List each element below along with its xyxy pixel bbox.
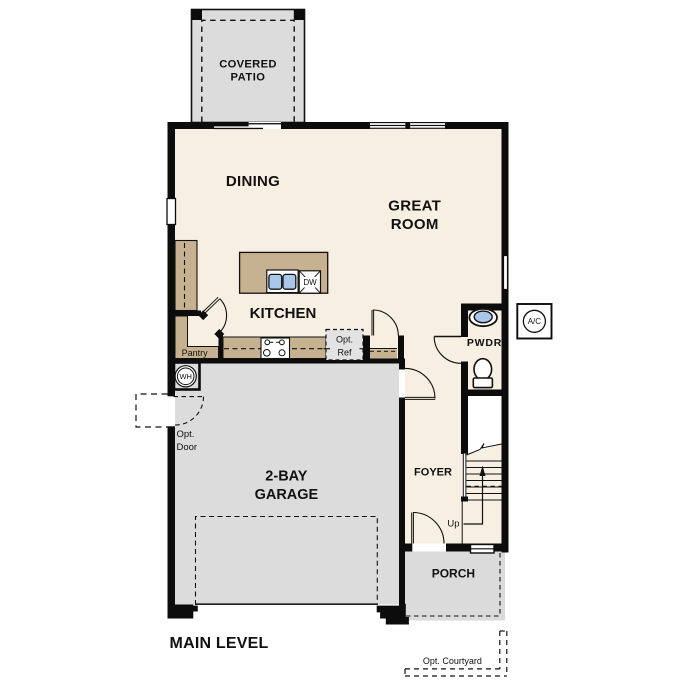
svg-text:GARAGE: GARAGE bbox=[255, 487, 319, 503]
svg-text:PATIO: PATIO bbox=[230, 72, 265, 84]
svg-text:FOYER: FOYER bbox=[414, 467, 452, 479]
svg-text:ROOM: ROOM bbox=[391, 216, 439, 233]
svg-text:GREAT: GREAT bbox=[388, 198, 441, 215]
svg-text:Up: Up bbox=[447, 518, 459, 529]
svg-text:DINING: DINING bbox=[226, 173, 280, 190]
svg-text:Ref: Ref bbox=[337, 348, 352, 358]
svg-text:KITCHEN: KITCHEN bbox=[250, 305, 317, 322]
svg-text:PORCH: PORCH bbox=[432, 567, 475, 581]
svg-text:Door: Door bbox=[177, 442, 198, 453]
svg-text:A/C: A/C bbox=[528, 317, 542, 326]
svg-text:COVERED: COVERED bbox=[219, 59, 276, 71]
svg-text:MAIN LEVEL: MAIN LEVEL bbox=[170, 635, 269, 652]
svg-text:Opt. Courtyard: Opt. Courtyard bbox=[423, 656, 482, 666]
svg-text:Opt.: Opt. bbox=[336, 335, 353, 345]
svg-text:Pantry: Pantry bbox=[182, 348, 209, 358]
svg-text:PWDR: PWDR bbox=[467, 337, 502, 349]
svg-text:WH: WH bbox=[179, 372, 192, 381]
svg-text:2-BAY: 2-BAY bbox=[265, 469, 308, 485]
svg-text:DW: DW bbox=[303, 278, 317, 287]
svg-text:Opt.: Opt. bbox=[177, 429, 195, 440]
